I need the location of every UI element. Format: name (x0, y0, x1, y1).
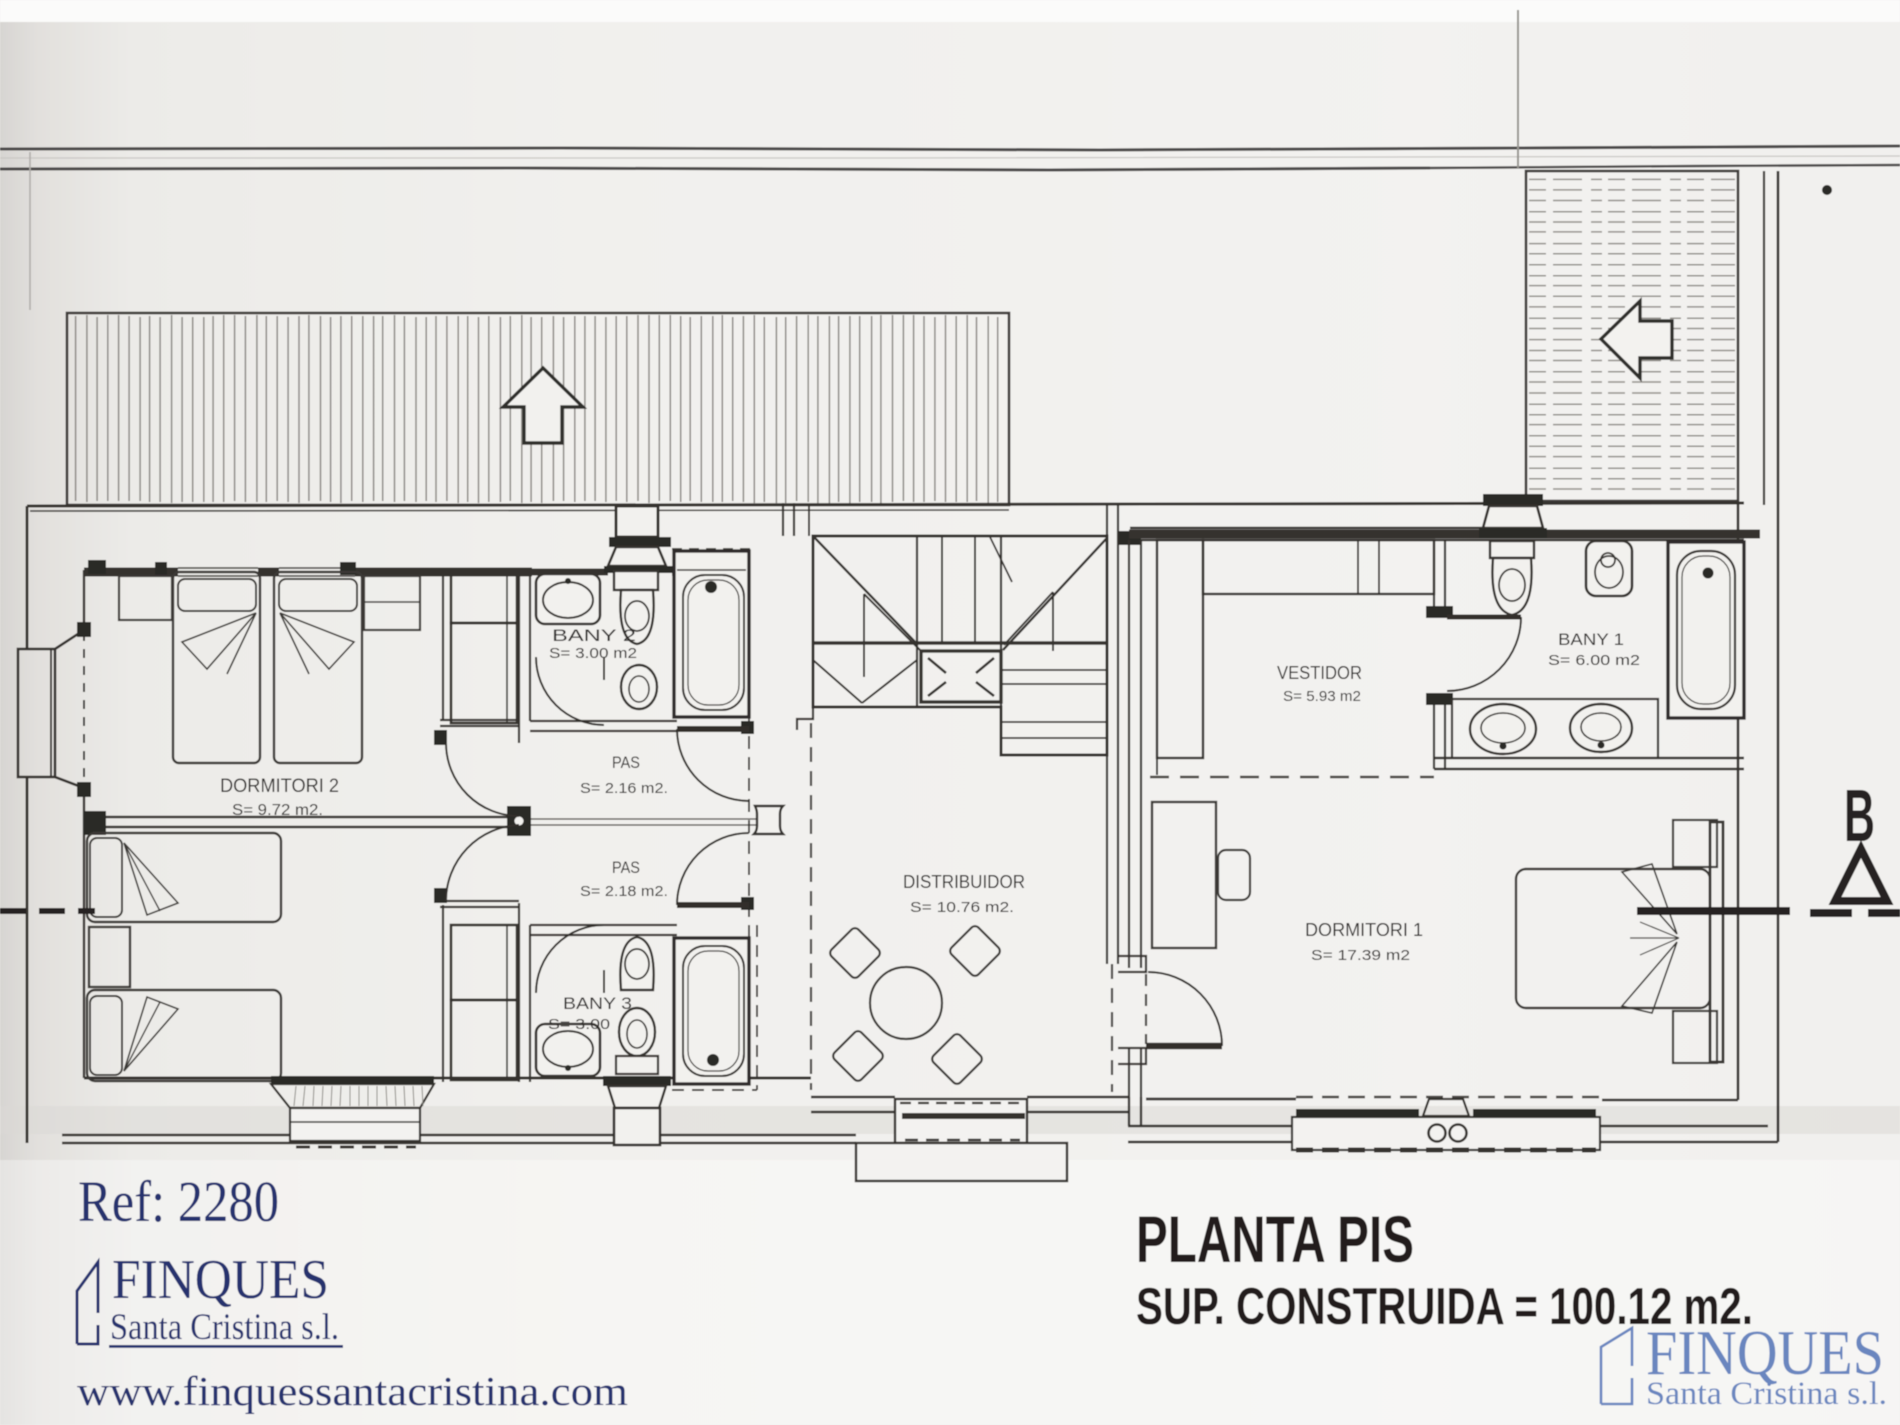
svg-text:DORMITORI 2: DORMITORI 2 (220, 776, 339, 797)
svg-text:S= 6.00 m2: S= 6.00 m2 (1548, 652, 1640, 669)
svg-text:Ref: 2280: Ref: 2280 (78, 1169, 279, 1234)
svg-text:S= 10.76 m2.: S= 10.76 m2. (910, 899, 1014, 916)
svg-text:PLANTA PIS: PLANTA PIS (1136, 1202, 1414, 1276)
svg-text:DORMITORI 1: DORMITORI 1 (1305, 920, 1423, 940)
svg-text:S= 5.93 m2: S= 5.93 m2 (1283, 688, 1361, 705)
svg-text:Santa Cristina s.l.: Santa Cristina s.l. (1646, 1376, 1887, 1412)
svg-text:www.finquessantacristina.com: www.finquessantacristina.com (77, 1368, 628, 1414)
svg-text:VESTIDOR: VESTIDOR (1277, 663, 1362, 683)
svg-text:S= 2.18 m2.: S= 2.18 m2. (580, 883, 668, 900)
svg-text:BANY 1: BANY 1 (1558, 630, 1624, 649)
svg-text:PAS: PAS (612, 858, 640, 877)
svg-text:S= 2.16 m2.: S= 2.16 m2. (580, 780, 668, 797)
svg-text:Santa Cristina s.l.: Santa Cristina s.l. (110, 1307, 339, 1348)
svg-text:S= 3.00: S= 3.00 (548, 1016, 610, 1033)
svg-text:S= 17.39 m2: S= 17.39 m2 (1311, 947, 1410, 964)
svg-text:FINQUES: FINQUES (112, 1249, 329, 1311)
svg-text:DISTRIBUIDOR: DISTRIBUIDOR (903, 872, 1025, 892)
svg-text:S= 3.00 m2: S= 3.00 m2 (549, 645, 637, 662)
svg-text:BANY 2: BANY 2 (552, 626, 636, 645)
svg-text:PAS: PAS (612, 753, 640, 772)
svg-text:BANY 3: BANY 3 (563, 994, 632, 1013)
svg-text:S= 9.72 m2.: S= 9.72 m2. (232, 802, 323, 819)
